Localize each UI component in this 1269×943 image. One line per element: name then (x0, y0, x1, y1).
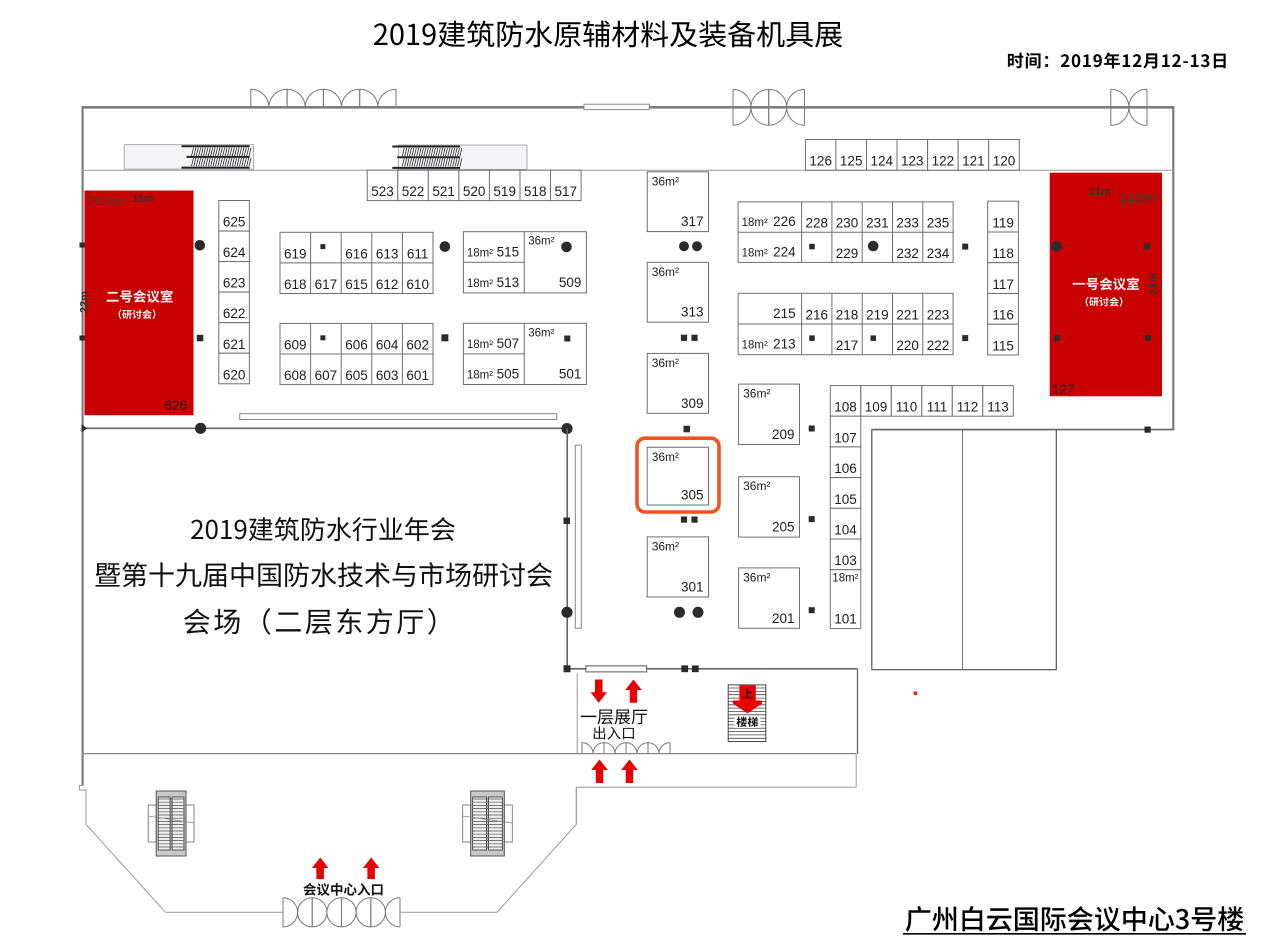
svg-text:617: 617 (315, 277, 338, 292)
svg-text:36m²: 36m² (652, 539, 679, 553)
svg-text:36m²: 36m² (652, 450, 679, 464)
svg-text:22m: 22m (79, 291, 91, 313)
svg-text:226: 226 (773, 214, 796, 229)
svg-text:610: 610 (406, 277, 429, 292)
svg-text:222: 222 (927, 338, 950, 353)
svg-text:520: 520 (463, 184, 486, 199)
svg-text:521: 521 (432, 184, 455, 199)
svg-text:105: 105 (834, 492, 857, 507)
svg-text:209: 209 (772, 427, 795, 442)
svg-text:618: 618 (284, 277, 307, 292)
svg-text:36m²: 36m² (652, 265, 679, 279)
svg-text:523: 523 (371, 184, 394, 199)
svg-text:104: 104 (834, 523, 857, 538)
svg-text:233: 233 (896, 216, 919, 231)
svg-text:18m²: 18m² (742, 247, 768, 259)
svg-text:505: 505 (497, 367, 520, 382)
svg-text:116: 116 (992, 308, 1014, 323)
svg-text:22m: 22m (1148, 273, 1160, 295)
svg-text:301: 301 (681, 580, 704, 595)
svg-text:18m²: 18m² (467, 339, 493, 351)
svg-text:609: 609 (284, 338, 307, 353)
svg-text:11m: 11m (1089, 186, 1111, 198)
svg-text:317: 317 (681, 214, 704, 229)
svg-text:36m²: 36m² (528, 236, 554, 248)
svg-text:229: 229 (836, 246, 859, 261)
svg-text:201: 201 (772, 611, 795, 626)
svg-text:513: 513 (497, 275, 520, 290)
svg-text:117: 117 (992, 277, 1014, 292)
svg-text:112: 112 (957, 400, 979, 415)
svg-text:518: 518 (524, 184, 547, 199)
svg-text:215: 215 (773, 306, 796, 321)
svg-text:606: 606 (345, 338, 368, 353)
svg-text:18m²: 18m² (742, 340, 768, 352)
svg-text:615: 615 (345, 277, 368, 292)
svg-text:616: 616 (345, 246, 368, 261)
svg-text:36m²: 36m² (743, 387, 770, 401)
svg-text:11m: 11m (132, 193, 154, 205)
svg-text:121: 121 (962, 154, 985, 169)
svg-text:604: 604 (376, 338, 399, 353)
svg-text:620: 620 (223, 367, 246, 382)
svg-text:111: 111 (927, 400, 948, 415)
svg-text:601: 601 (406, 368, 429, 383)
svg-text:611: 611 (407, 246, 429, 261)
svg-text:36m²: 36m² (743, 570, 770, 584)
svg-text:224: 224 (773, 244, 796, 259)
svg-text:219: 219 (866, 308, 889, 323)
svg-text:18m²: 18m² (832, 573, 858, 585)
svg-text:608: 608 (284, 368, 307, 383)
svg-text:213: 213 (773, 337, 796, 352)
svg-text:127: 127 (1052, 382, 1075, 397)
svg-text:36m²: 36m² (652, 356, 679, 370)
svg-text:109: 109 (865, 400, 888, 415)
svg-text:18m²: 18m² (467, 370, 493, 382)
svg-text:110: 110 (896, 400, 918, 415)
svg-text:231: 231 (866, 216, 889, 231)
svg-text:18m²: 18m² (467, 247, 493, 259)
svg-text:106: 106 (834, 461, 857, 476)
svg-text:625: 625 (223, 215, 246, 230)
svg-text:515: 515 (497, 244, 520, 259)
svg-text:624: 624 (223, 245, 246, 260)
svg-text:622: 622 (223, 306, 246, 321)
svg-text:107: 107 (834, 430, 857, 445)
svg-text:607: 607 (315, 368, 338, 383)
svg-text:507: 507 (497, 336, 520, 351)
svg-text:216: 216 (806, 308, 829, 323)
svg-text:118: 118 (992, 246, 1014, 261)
svg-text:119: 119 (992, 216, 1014, 231)
svg-text:313: 313 (681, 305, 704, 320)
svg-text:602: 602 (406, 338, 429, 353)
svg-text:120: 120 (993, 154, 1016, 169)
svg-text:18m²: 18m² (742, 217, 768, 229)
svg-text:509: 509 (559, 275, 582, 290)
svg-text:36m²: 36m² (528, 327, 554, 339)
svg-text:230: 230 (836, 216, 859, 231)
svg-text:101: 101 (834, 612, 857, 627)
svg-text:126: 126 (809, 154, 832, 169)
svg-text:123: 123 (901, 154, 924, 169)
svg-text:223: 223 (927, 308, 950, 323)
svg-text:603: 603 (376, 368, 399, 383)
svg-text:103: 103 (834, 553, 857, 568)
svg-text:612: 612 (376, 277, 399, 292)
svg-text:36m²: 36m² (743, 479, 770, 493)
svg-text:623: 623 (223, 276, 246, 291)
svg-text:122: 122 (932, 154, 955, 169)
svg-text:619: 619 (284, 246, 307, 261)
svg-text:517: 517 (555, 184, 578, 199)
svg-text:218: 218 (836, 308, 859, 323)
svg-text:522: 522 (402, 184, 425, 199)
svg-text:519: 519 (493, 184, 516, 199)
svg-text:36m²: 36m² (652, 174, 679, 188)
svg-text:626: 626 (164, 398, 187, 413)
svg-text:124: 124 (871, 154, 894, 169)
svg-text:501: 501 (559, 367, 582, 382)
svg-text:232: 232 (896, 246, 919, 261)
svg-text:228: 228 (806, 216, 829, 231)
svg-text:309: 309 (681, 396, 704, 411)
svg-text:621: 621 (223, 337, 246, 352)
svg-text:242m²: 242m² (88, 194, 127, 209)
svg-text:113: 113 (987, 400, 1009, 415)
svg-text:125: 125 (840, 154, 863, 169)
svg-text:205: 205 (772, 520, 795, 535)
svg-text:108: 108 (834, 400, 857, 415)
svg-text:605: 605 (345, 368, 368, 383)
svg-text:305: 305 (681, 488, 704, 503)
svg-text:220: 220 (896, 338, 919, 353)
svg-text:115: 115 (992, 339, 1014, 354)
svg-text:242m²: 242m² (1120, 191, 1159, 206)
svg-text:613: 613 (376, 246, 399, 261)
svg-text:234: 234 (927, 246, 950, 261)
svg-text:235: 235 (927, 216, 950, 231)
svg-text:217: 217 (836, 338, 859, 353)
svg-text:221: 221 (896, 308, 919, 323)
svg-text:18m²: 18m² (467, 278, 493, 290)
